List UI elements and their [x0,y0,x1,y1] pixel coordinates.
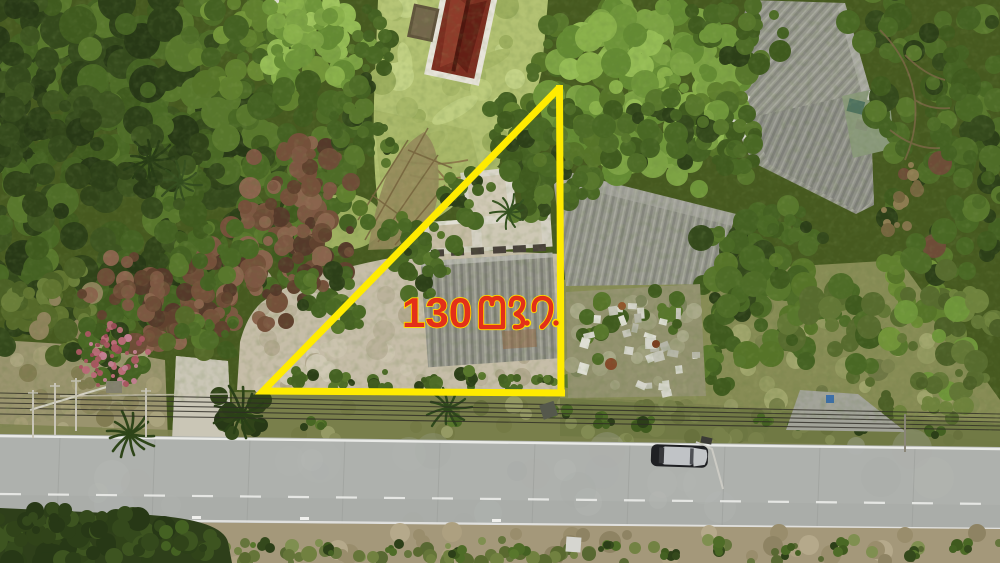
svg-text:130: 130 [402,289,472,336]
